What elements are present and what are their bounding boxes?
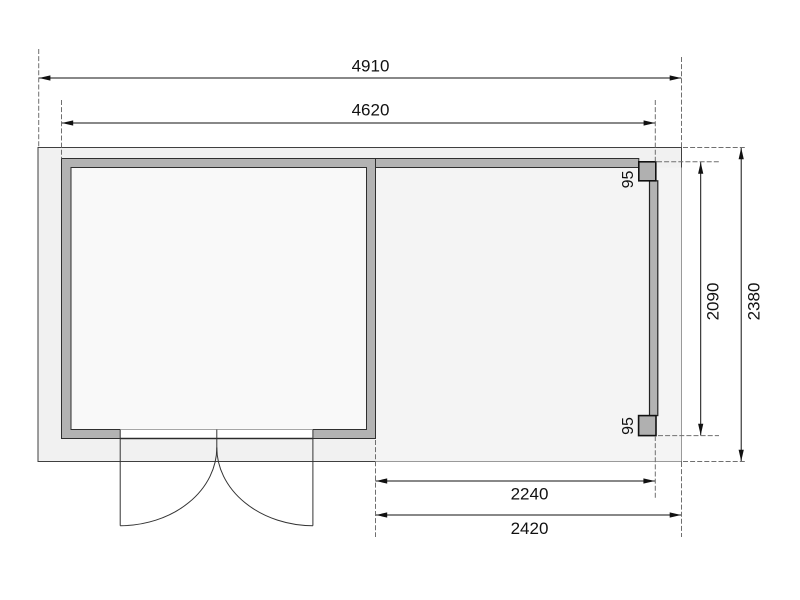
svg-text:2090: 2090 — [704, 283, 723, 321]
svg-text:2420: 2420 — [511, 519, 549, 538]
svg-text:4620: 4620 — [352, 101, 390, 120]
svg-text:2240: 2240 — [511, 485, 549, 504]
svg-text:95: 95 — [620, 171, 637, 189]
svg-text:95: 95 — [620, 417, 637, 435]
svg-text:4910: 4910 — [352, 57, 390, 76]
svg-text:2380: 2380 — [745, 283, 764, 321]
